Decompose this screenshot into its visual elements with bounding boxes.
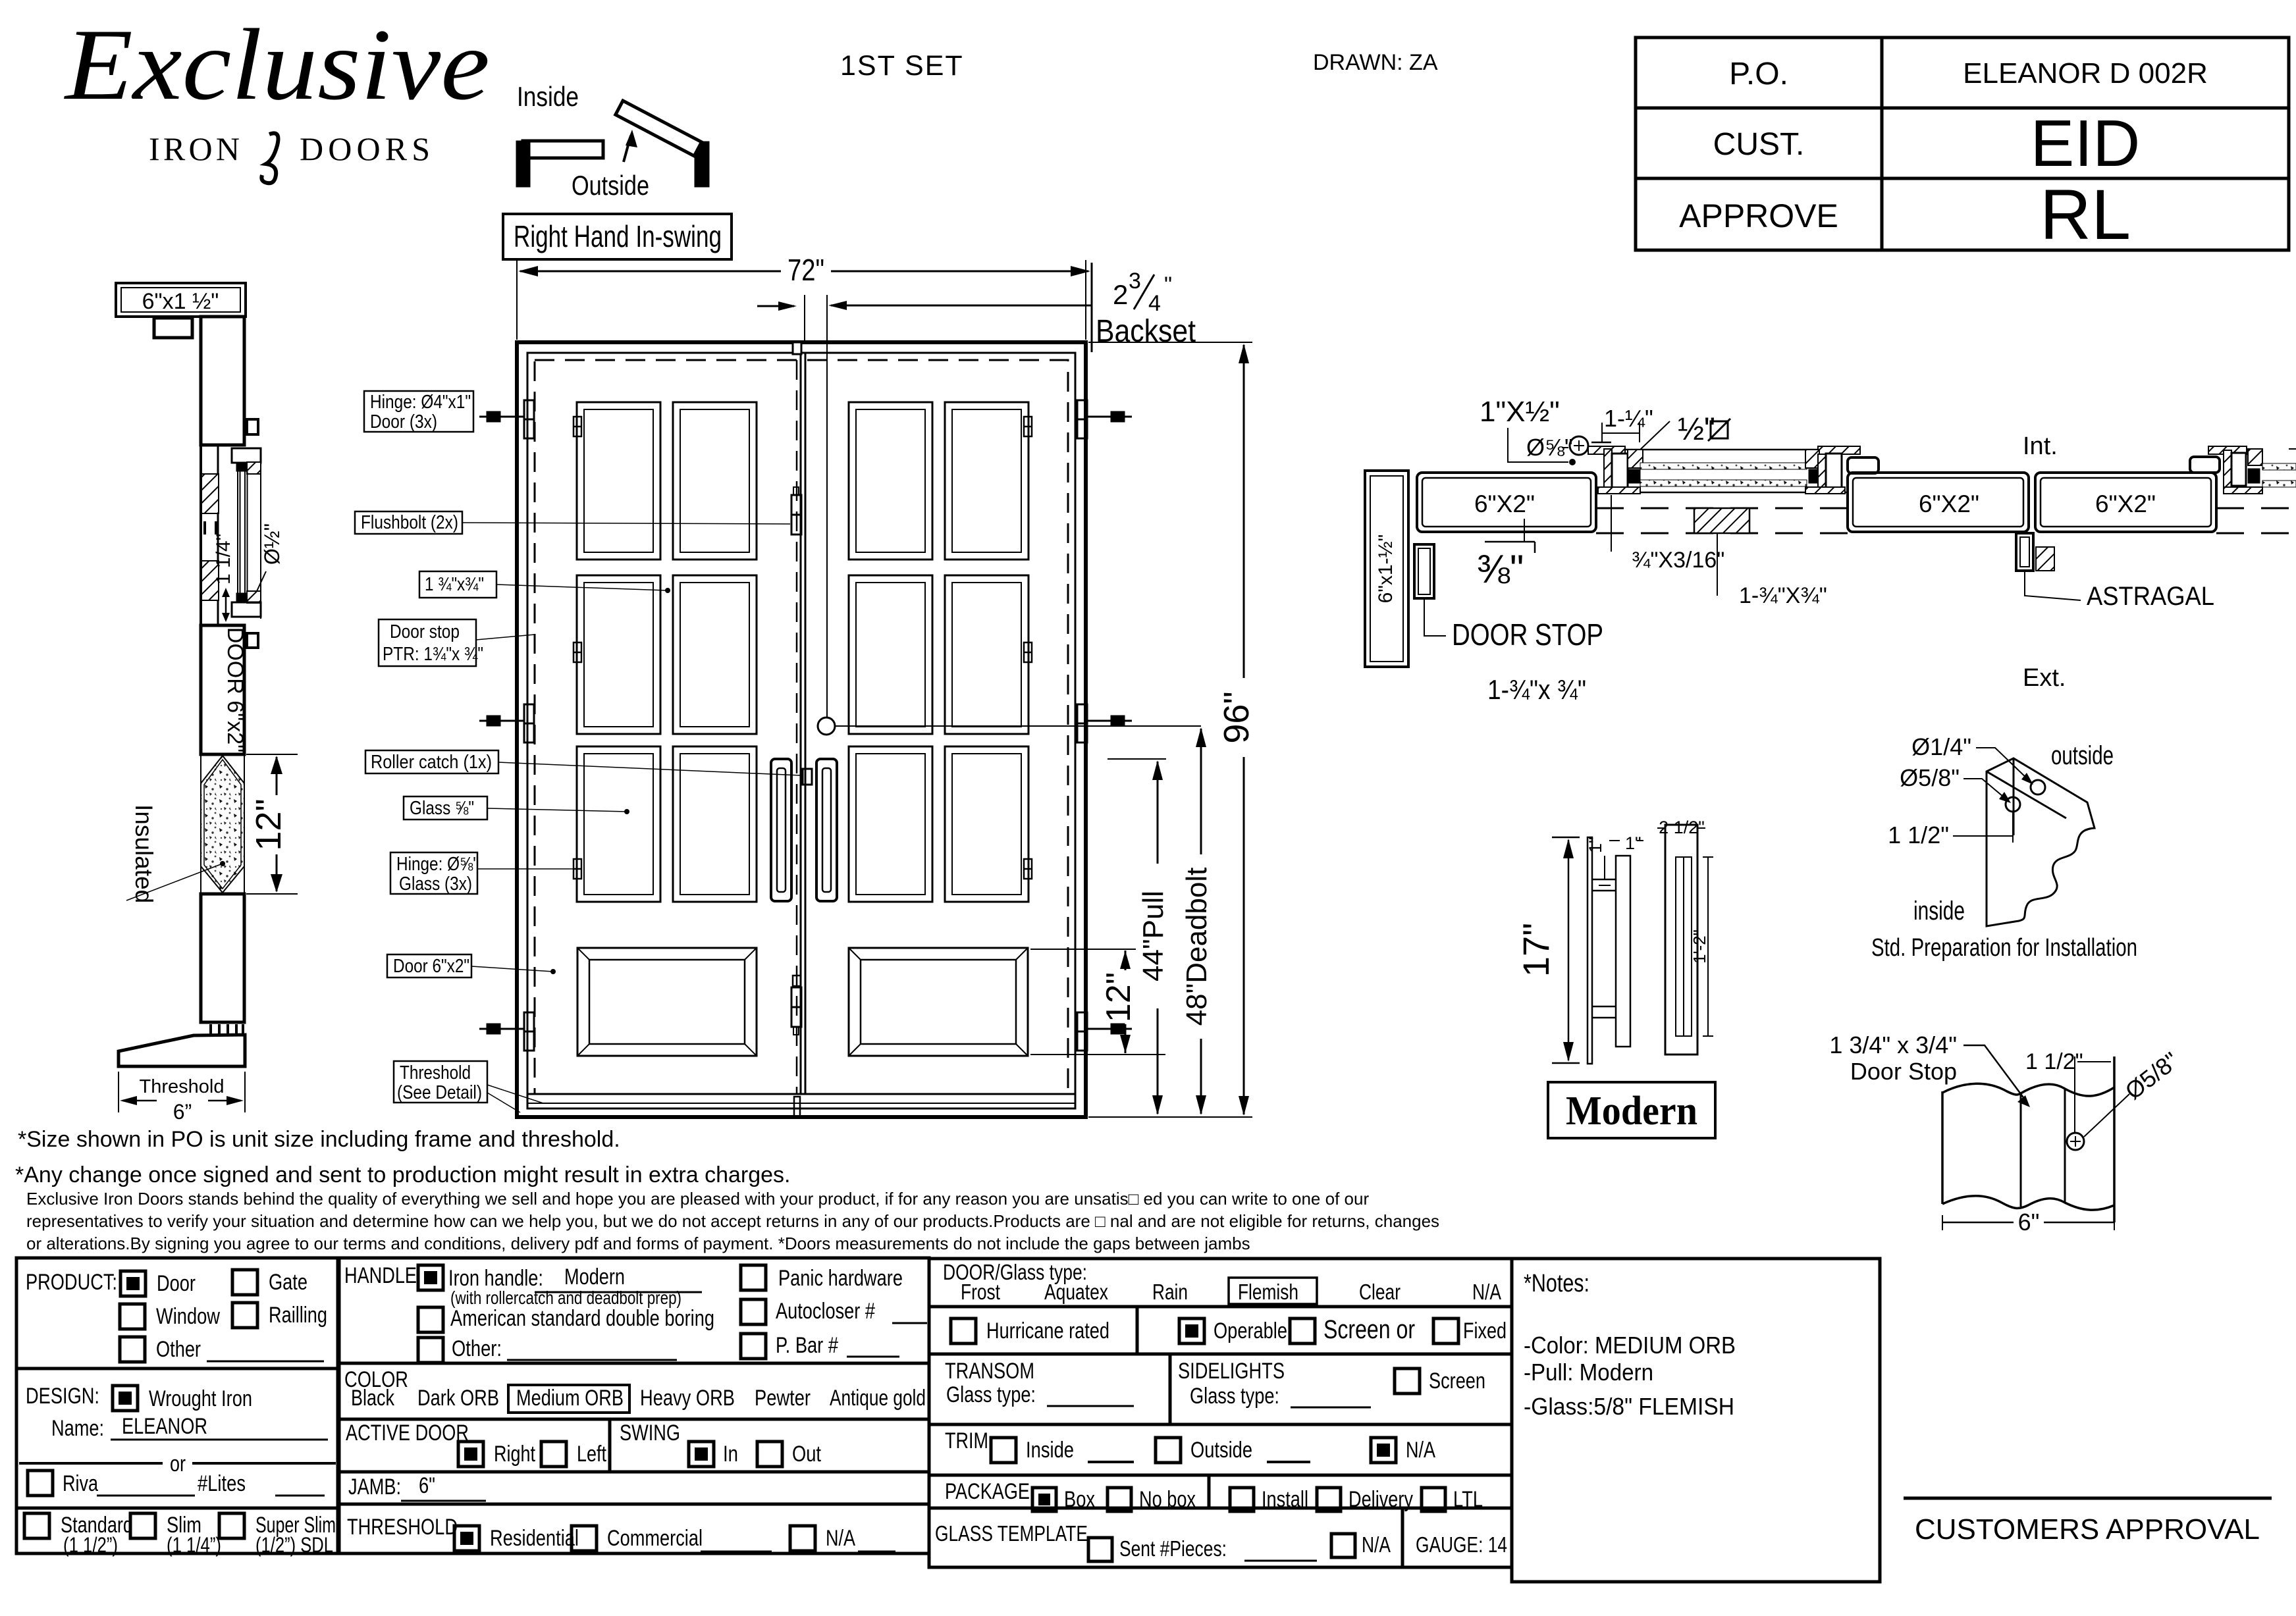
svg-text:1"X½": 1"X½" xyxy=(1480,396,1560,428)
svg-text:CUSTOMERS APPROVAL: CUSTOMERS APPROVAL xyxy=(1915,1513,2260,1546)
svg-text:Frost: Frost xyxy=(961,1280,1000,1304)
svg-text:Insulated: Insulated xyxy=(130,804,157,903)
svg-text:(1/2”) SDL: (1/2”) SDL xyxy=(255,1533,333,1557)
svg-text:": " xyxy=(1164,273,1172,298)
svg-text:Door (3x): Door (3x) xyxy=(370,411,437,432)
svg-text:Door: Door xyxy=(157,1271,196,1296)
svg-text:Screen or: Screen or xyxy=(1323,1315,1415,1344)
svg-text:Commercial: Commercial xyxy=(607,1526,703,1551)
svg-text:1 1/2": 1 1/2" xyxy=(1888,821,1949,848)
svg-text:Exclusive: Exclusive xyxy=(64,8,490,121)
svg-text:ACTIVE DOOR: ACTIVE DOOR xyxy=(346,1421,469,1446)
svg-text:Glass ⅝": Glass ⅝" xyxy=(410,798,474,819)
svg-text:*Any change once signed and se: *Any change once signed and sent to prod… xyxy=(15,1162,791,1187)
svg-text:Riva: Riva xyxy=(63,1471,98,1496)
svg-text:EID: EID xyxy=(2031,107,2141,180)
svg-text:PRODUCT:: PRODUCT: xyxy=(26,1270,117,1295)
svg-text:1-¾"X¾": 1-¾"X¾" xyxy=(1739,583,1827,608)
svg-text:ELEANOR D 002R: ELEANOR D 002R xyxy=(1963,57,2208,90)
svg-text:DOOR 6"x2": DOOR 6"x2" xyxy=(223,627,248,752)
svg-text:Antique gold: Antique gold xyxy=(830,1386,926,1411)
svg-text:Flushbolt (2x): Flushbolt (2x) xyxy=(361,512,458,533)
svg-text:#Lites: #Lites xyxy=(198,1471,246,1496)
svg-text:Modern: Modern xyxy=(564,1264,625,1290)
svg-text:12": 12" xyxy=(1100,972,1138,1022)
svg-text:CUST.: CUST. xyxy=(1713,127,1805,162)
svg-text:Door Stop: Door Stop xyxy=(1850,1058,1957,1085)
svg-text:TRANSOM: TRANSOM xyxy=(945,1359,1034,1384)
svg-text:1": 1" xyxy=(1625,833,1642,853)
svg-text:Left: Left xyxy=(577,1442,606,1467)
svg-text:Residential: Residential xyxy=(490,1526,579,1551)
svg-text:Right Hand In-swing: Right Hand In-swing xyxy=(514,219,722,253)
svg-text:6": 6" xyxy=(419,1473,435,1498)
svg-text:N/A: N/A xyxy=(826,1526,855,1551)
svg-text:*Size shown in PO is unit size: *Size shown in PO is unit size including… xyxy=(18,1127,620,1152)
svg-text:Gate: Gate xyxy=(269,1270,307,1295)
svg-text:Dark ORB: Dark ORB xyxy=(417,1386,499,1411)
svg-text:1": 1" xyxy=(1586,837,1605,853)
svg-text:DRAWN: ZA: DRAWN: ZA xyxy=(1313,50,1438,75)
svg-text:Rain: Rain xyxy=(1152,1280,1188,1304)
svg-text:Hinge: Ø4"x1": Hinge: Ø4"x1" xyxy=(370,392,471,413)
svg-text:Backset: Backset xyxy=(1096,314,1196,349)
svg-text:*Notes:: *Notes: xyxy=(1524,1270,1589,1297)
svg-text:Out: Out xyxy=(792,1442,821,1467)
svg-text:DESIGN:: DESIGN: xyxy=(26,1384,99,1409)
svg-text:Threshold: Threshold xyxy=(400,1062,471,1083)
svg-text:THRESHOLD: THRESHOLD xyxy=(347,1515,458,1540)
svg-text:N/A: N/A xyxy=(1406,1438,1435,1463)
svg-text:SWING: SWING xyxy=(620,1421,680,1446)
svg-text:6”: 6” xyxy=(173,1100,192,1124)
svg-text:1 ¾"x¾": 1 ¾"x¾" xyxy=(425,574,484,595)
svg-text:1 3/4" x 3/4": 1 3/4" x 3/4" xyxy=(1829,1031,1957,1058)
svg-text:44"Pull: 44"Pull xyxy=(1137,891,1169,981)
svg-text:1-¼": 1-¼" xyxy=(1604,405,1653,432)
svg-text:P.O.: P.O. xyxy=(1729,57,1788,91)
svg-text:72": 72" xyxy=(788,253,824,287)
svg-text:1ST SET: 1ST SET xyxy=(840,50,964,82)
svg-text:Exclusive Iron Doors stands be: Exclusive Iron Doors stands behind the q… xyxy=(26,1189,1369,1209)
svg-text:6"x1 ½": 6"x1 ½" xyxy=(142,289,219,314)
svg-text:1'-2": 1'-2" xyxy=(1690,929,1709,964)
svg-text:Install: Install xyxy=(1262,1487,1308,1512)
svg-text:Name:: Name: xyxy=(51,1416,104,1441)
svg-text:Flemish: Flemish xyxy=(1238,1280,1298,1304)
svg-text:GAUGE: 14: GAUGE: 14 xyxy=(1416,1532,1507,1557)
svg-text:DOOR STOP: DOOR STOP xyxy=(1452,617,1603,652)
svg-text:Hurricane rated: Hurricane rated xyxy=(986,1318,1109,1343)
svg-text:SIDELIGHTS: SIDELIGHTS xyxy=(1178,1359,1285,1384)
svg-text:N/A: N/A xyxy=(1362,1532,1391,1557)
svg-text:Other: Other xyxy=(156,1337,201,1362)
svg-text:PTR: 1¾"x ¾": PTR: 1¾"x ¾" xyxy=(383,644,483,665)
svg-text:Other:: Other: xyxy=(452,1336,502,1361)
svg-text:6": 6" xyxy=(2018,1209,2040,1236)
svg-text:Ø1/4": Ø1/4" xyxy=(1911,733,1971,760)
svg-text:1 1/4": 1 1/4" xyxy=(213,534,234,585)
svg-text:Glass (3x): Glass (3x) xyxy=(399,873,472,895)
svg-text:Door stop: Door stop xyxy=(390,621,460,642)
svg-text:Panic hardware: Panic hardware xyxy=(778,1266,903,1291)
svg-text:Sent #Pieces:: Sent #Pieces: xyxy=(1119,1536,1227,1561)
svg-text:HANDLE: HANDLE xyxy=(344,1263,417,1288)
svg-text:Screen: Screen xyxy=(1429,1368,1485,1394)
svg-text:17": 17" xyxy=(1515,923,1557,977)
svg-text:96": 96" xyxy=(1217,691,1256,743)
svg-text:Pewter: Pewter xyxy=(755,1386,811,1411)
svg-text:1-¾"x ¾": 1-¾"x ¾" xyxy=(1487,674,1586,705)
svg-text:¾"X3/16": ¾"X3/16" xyxy=(1632,548,1724,573)
svg-text:4: 4 xyxy=(1148,291,1161,316)
svg-text:Ø5/8": Ø5/8" xyxy=(1900,764,1960,791)
svg-text:-Color: MEDIUM ORB: -Color: MEDIUM ORB xyxy=(1524,1332,1736,1359)
svg-text:(1 1/2”): (1 1/2”) xyxy=(63,1533,118,1557)
svg-text:Int.: Int. xyxy=(2023,432,2058,460)
svg-text:Ext.: Ext. xyxy=(2023,664,2066,692)
svg-text:Std. Preparation for Installat: Std. Preparation for Installation xyxy=(1871,934,2137,962)
svg-text:48"Deadbolt: 48"Deadbolt xyxy=(1181,868,1213,1026)
svg-text:Box: Box xyxy=(1064,1487,1095,1512)
svg-text:Clear: Clear xyxy=(1359,1280,1401,1304)
svg-text:-Pull: Modern: -Pull: Modern xyxy=(1524,1359,1653,1386)
svg-text:TRIM: TRIM xyxy=(945,1428,988,1453)
svg-text:Wrought Iron: Wrought Iron xyxy=(149,1386,252,1411)
svg-text:Threshold: Threshold xyxy=(140,1076,225,1097)
svg-text:PACKAGE: PACKAGE xyxy=(945,1479,1030,1504)
svg-text:Autocloser #: Autocloser # xyxy=(776,1299,875,1324)
svg-text:2: 2 xyxy=(1113,279,1128,310)
svg-text:Inside: Inside xyxy=(1026,1438,1074,1463)
svg-text:Roller catch (1x): Roller catch (1x) xyxy=(371,752,492,773)
svg-text:Fixed: Fixed xyxy=(1463,1318,1507,1343)
svg-text:6"X2": 6"X2" xyxy=(2095,490,2156,517)
svg-text:JAMB:: JAMB: xyxy=(348,1474,401,1499)
svg-text:Heavy ORB: Heavy ORB xyxy=(640,1386,735,1411)
svg-text:Inside: Inside xyxy=(517,81,579,112)
svg-text:Right: Right xyxy=(494,1442,535,1467)
svg-text:3: 3 xyxy=(1129,269,1141,294)
svg-text:inside: inside xyxy=(1913,897,1965,925)
svg-text:Door 6"x2": Door 6"x2" xyxy=(393,956,469,977)
svg-text:Ø½": Ø½" xyxy=(260,523,284,565)
svg-text:Railling: Railling xyxy=(269,1303,327,1328)
svg-text:or alterations.By signing you: or alterations.By signing you agree to o… xyxy=(26,1234,1250,1253)
svg-text:P. Bar #: P. Bar # xyxy=(776,1333,838,1358)
svg-text:Outside: Outside xyxy=(572,170,649,201)
svg-text:RL: RL xyxy=(2040,174,2131,254)
svg-text:(with rollercatch and deadbolt: (with rollercatch and deadbolt prep) xyxy=(450,1288,681,1308)
svg-text:Glass type:: Glass type: xyxy=(946,1382,1036,1407)
svg-text:No box: No box xyxy=(1139,1487,1196,1512)
svg-text:ASTRAGAL: ASTRAGAL xyxy=(2087,582,2214,611)
svg-text:(See Detail): (See Detail) xyxy=(397,1082,482,1103)
svg-text:outside: outside xyxy=(2051,741,2114,770)
svg-text:or: or xyxy=(170,1451,186,1476)
svg-text:Window: Window xyxy=(156,1304,220,1329)
svg-text:6"X2": 6"X2" xyxy=(1474,490,1535,517)
svg-text:Medium ORB: Medium ORB xyxy=(516,1386,624,1411)
svg-text:In: In xyxy=(723,1442,738,1467)
svg-text:representatives to verify your: representatives to verify your situation… xyxy=(26,1211,1439,1231)
svg-text:LTL: LTL xyxy=(1453,1487,1483,1512)
svg-text:American standard double borin: American standard double boring xyxy=(450,1306,714,1331)
svg-text:-Glass:5/8" FLEMISH: -Glass:5/8" FLEMISH xyxy=(1524,1393,1734,1420)
svg-text:Delivery: Delivery xyxy=(1348,1487,1413,1512)
svg-text:(1 1/4”): (1 1/4”) xyxy=(167,1533,221,1557)
svg-text:N/A: N/A xyxy=(1472,1280,1501,1304)
svg-text:Glass type:: Glass type: xyxy=(1190,1384,1279,1409)
svg-text:Hinge: Ø⅝": Hinge: Ø⅝" xyxy=(396,854,479,875)
svg-text:Aquatex: Aquatex xyxy=(1044,1280,1108,1304)
svg-text:Operable: Operable xyxy=(1214,1318,1287,1343)
svg-text:ELEANOR: ELEANOR xyxy=(122,1414,207,1439)
svg-text:Modern: Modern xyxy=(1566,1089,1697,1134)
svg-text:GLASS TEMPLATE: GLASS TEMPLATE xyxy=(935,1521,1088,1546)
svg-text:Outside: Outside xyxy=(1190,1438,1252,1463)
svg-text:⅜": ⅜" xyxy=(1477,547,1524,591)
svg-text:APPROVE: APPROVE xyxy=(1679,197,1838,234)
svg-text:6"x1-½": 6"x1-½" xyxy=(1375,534,1397,604)
svg-text:6"X2": 6"X2" xyxy=(1919,490,1979,517)
svg-text:Black: Black xyxy=(351,1386,395,1411)
svg-text:12": 12" xyxy=(249,798,288,850)
